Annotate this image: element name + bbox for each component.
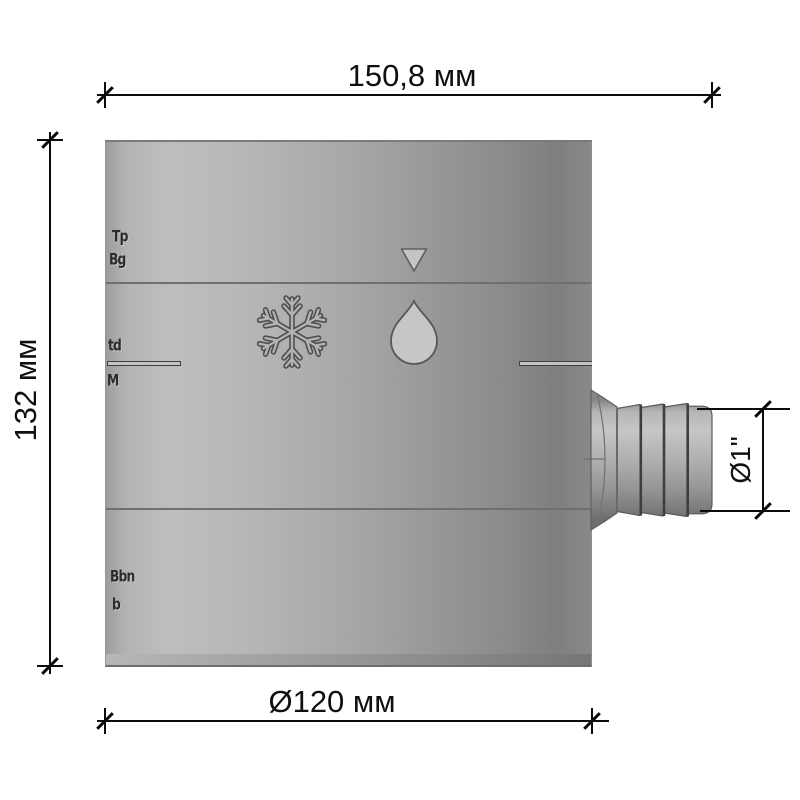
water-drop-icon (391, 301, 437, 364)
dimension-label: 132 мм (8, 339, 44, 442)
embossed-mark: Bbn (110, 569, 134, 585)
spigot-root-fillet (591, 390, 617, 530)
body-seam-lower (106, 508, 591, 510)
embossed-mark: b (112, 597, 120, 613)
dimension-label: 150,8 мм (348, 58, 477, 94)
embossed-mark: td (108, 338, 121, 354)
embossed-mark: Tp (112, 229, 128, 245)
dimension-label: Ø120 мм (268, 684, 395, 720)
snowflake-icon (259, 298, 326, 366)
dimension-label: Ø1" (725, 436, 757, 483)
collector-body: Tp Bg td M Bbn b (105, 140, 592, 667)
dimension-line (49, 132, 51, 674)
dimension-line (97, 720, 609, 722)
embossed-mark: Bg (109, 252, 126, 268)
technical-drawing: Tp Bg td M Bbn b (0, 0, 800, 800)
overflow-slot-left (107, 361, 181, 366)
fill-level-triangle-icon (402, 249, 427, 271)
extension-line (700, 510, 790, 512)
overflow-slot-right (519, 361, 592, 366)
molded-symbols (250, 240, 450, 370)
dimension-line (97, 94, 721, 96)
extension-line (697, 408, 790, 410)
embossed-mark: M (107, 373, 118, 389)
dimension-line (762, 408, 764, 512)
